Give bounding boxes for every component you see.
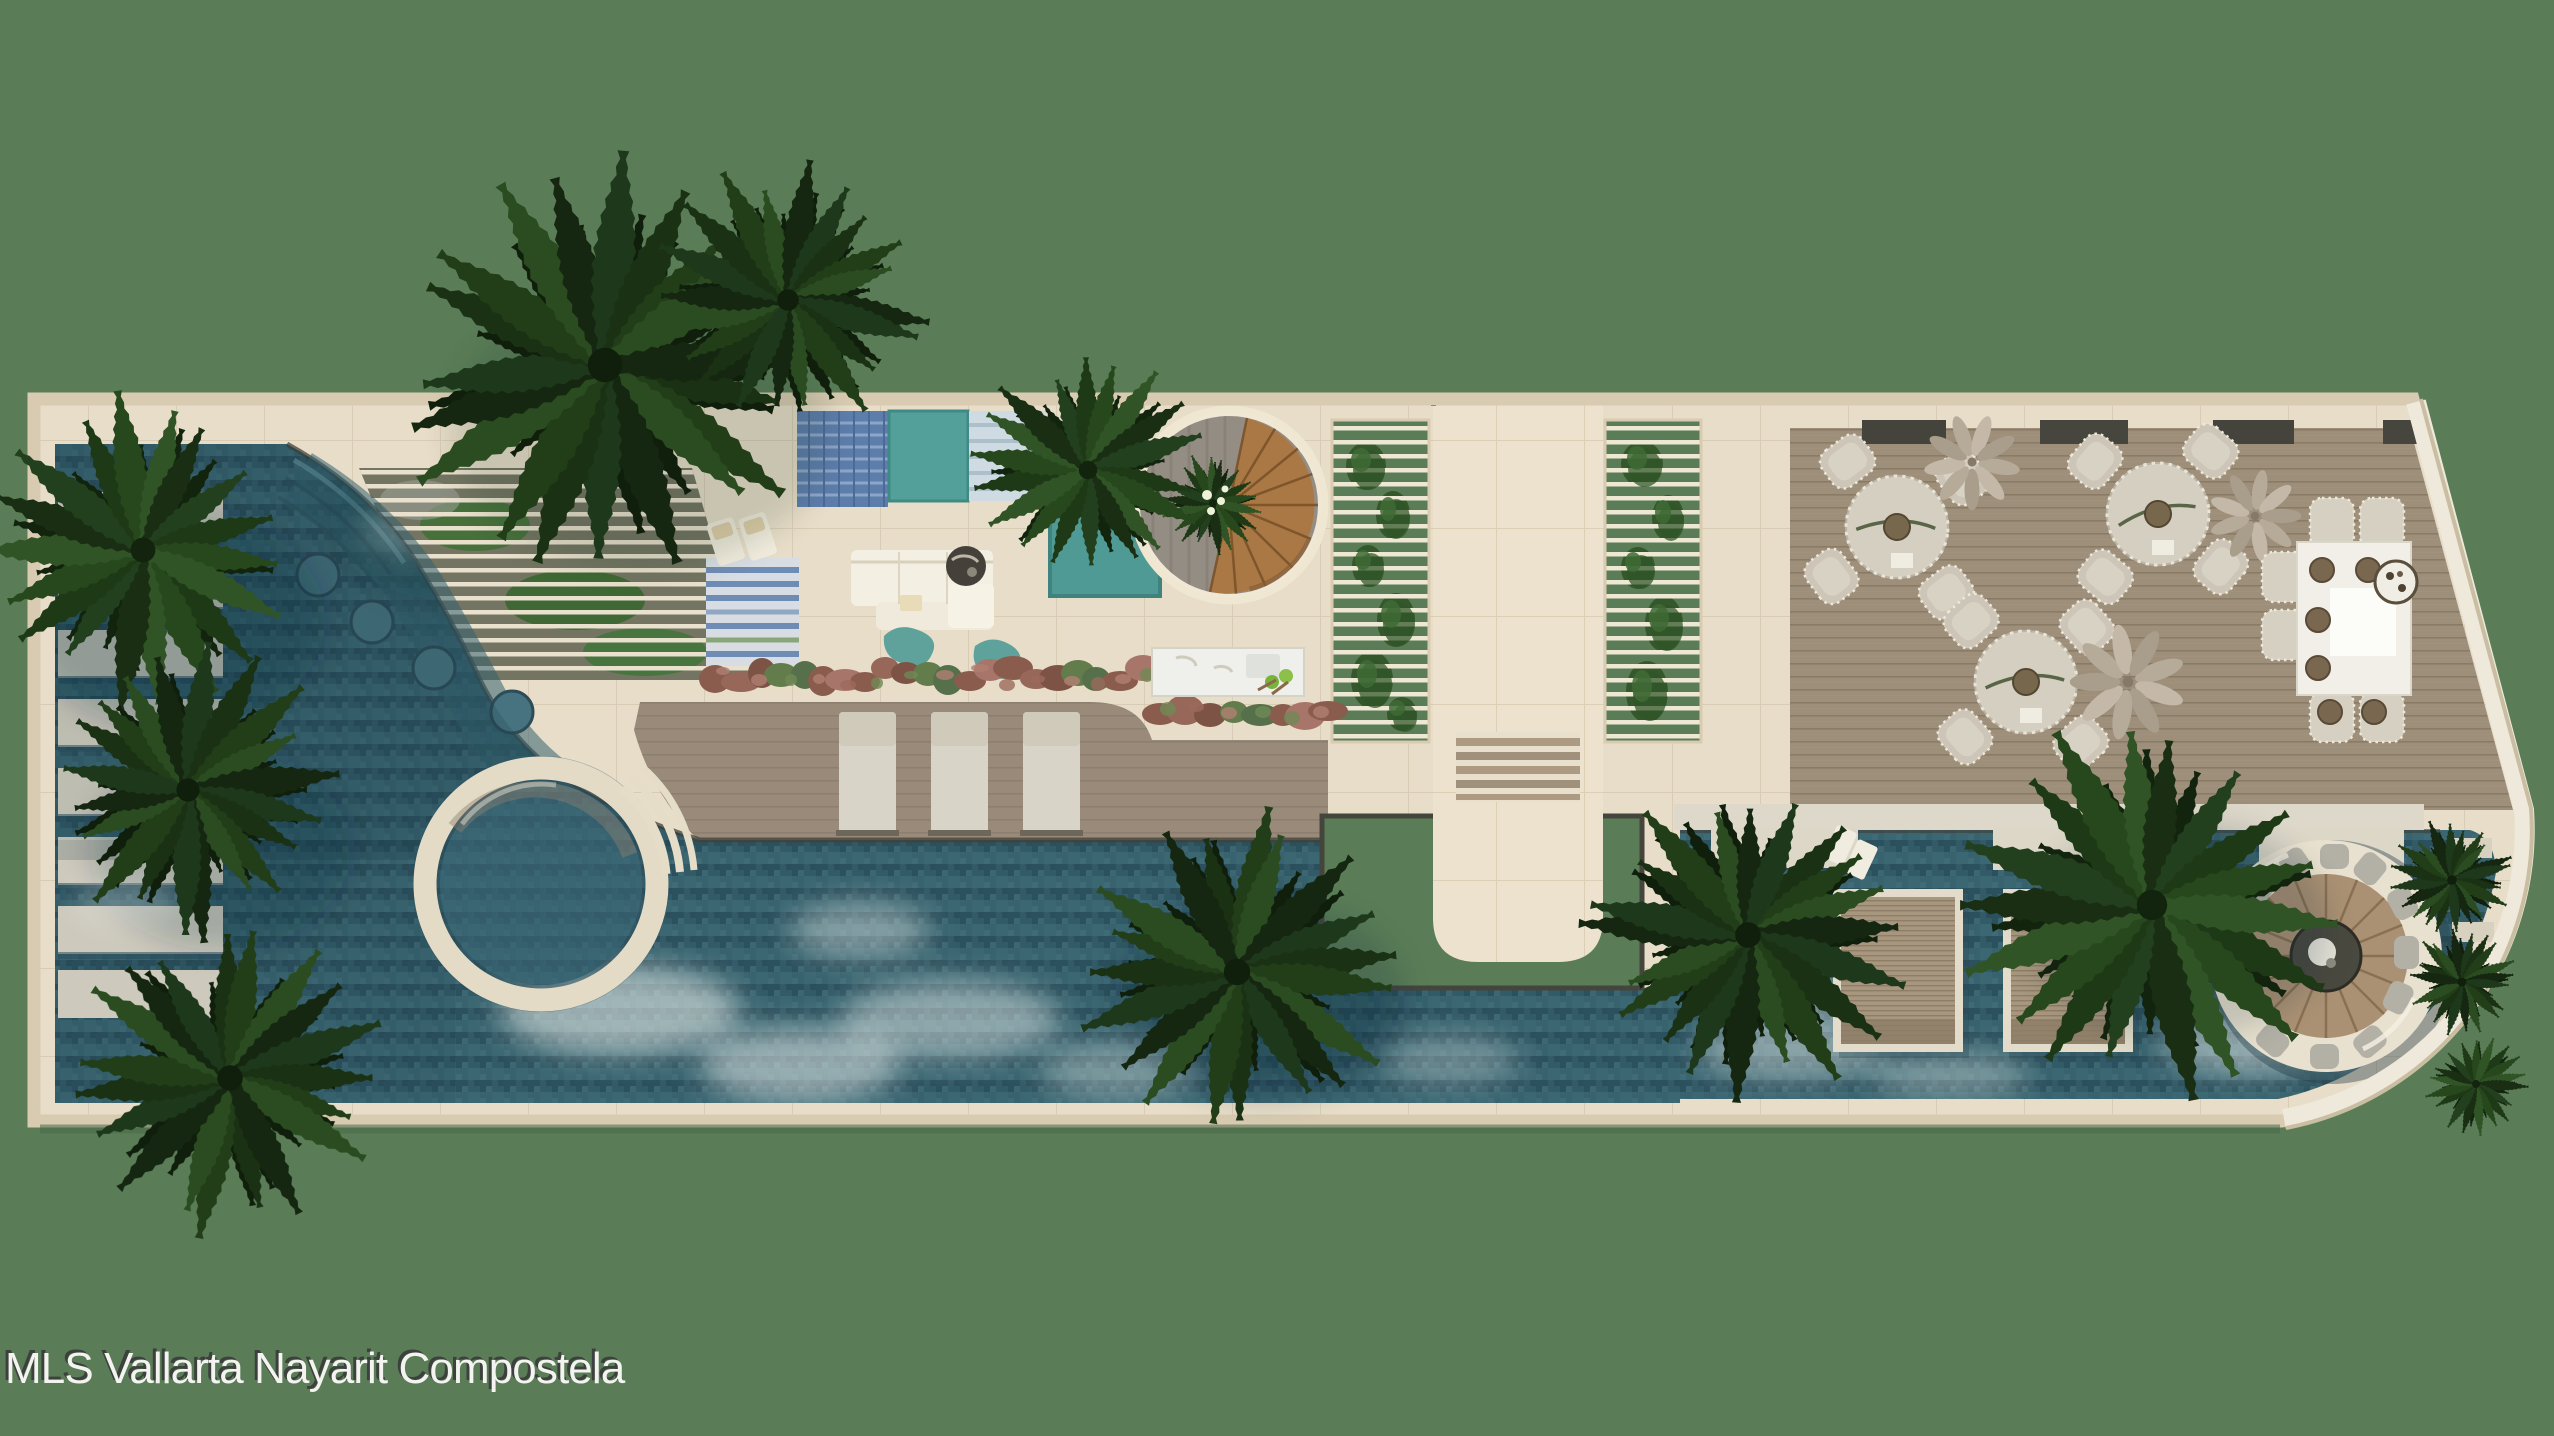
svg-text:MLS Vallarta Nayarit Compostel: MLS Vallarta Nayarit Compostela [5, 1344, 626, 1393]
